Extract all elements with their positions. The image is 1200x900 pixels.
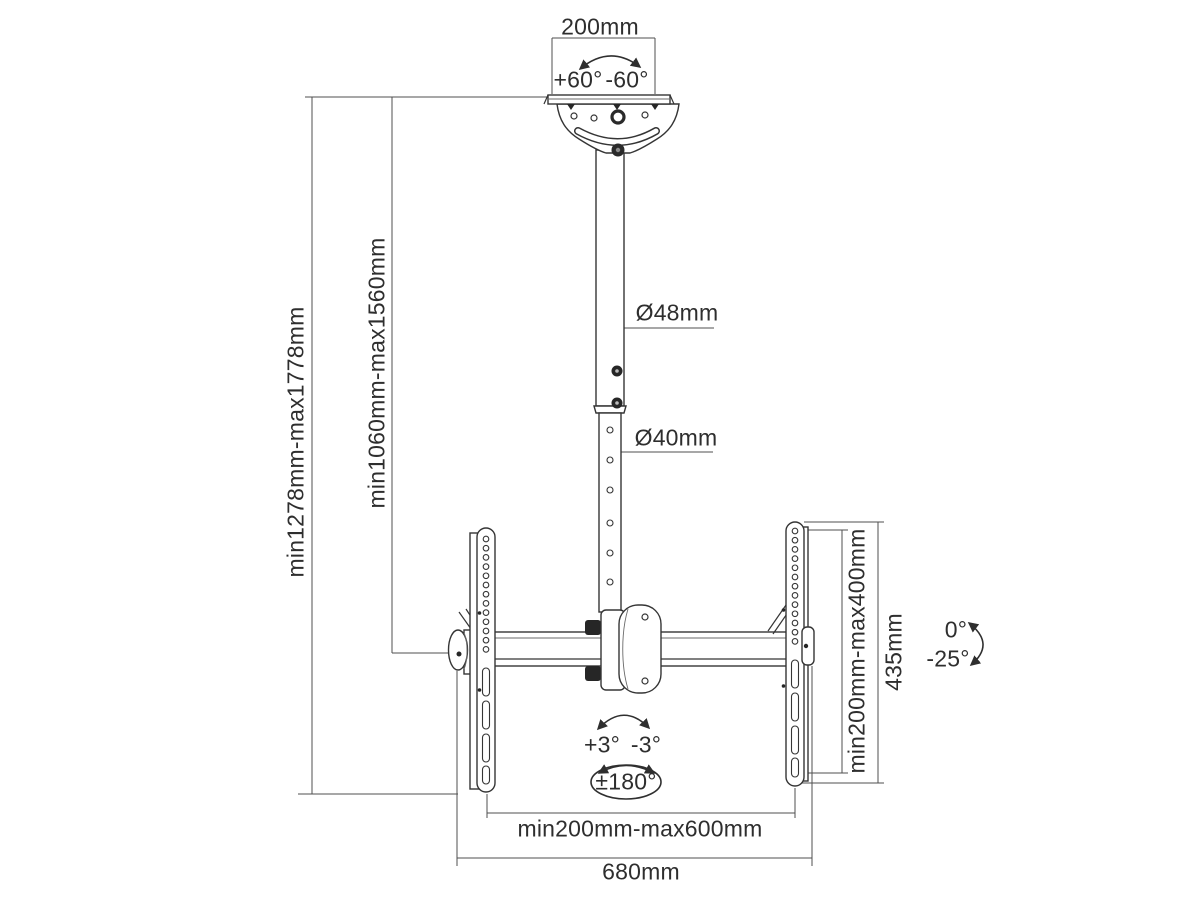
mount-drawing <box>0 0 1200 900</box>
tilt-range-arc-arrow <box>969 623 983 665</box>
dim-label-pole-height: min1060mm-max1560mm <box>366 238 389 509</box>
dim-label-ceiling-plate-width: 200mm <box>561 16 639 39</box>
dim-label-upper-pole-diameter: Ø48mm <box>636 302 719 325</box>
dim-label-overall-height: min1278mm-max1778mm <box>285 307 308 578</box>
dim-label-vesa-height: min200mm-max400mm <box>846 529 869 774</box>
ceiling-bracket <box>544 95 679 157</box>
left-vesa-rail <box>470 528 495 792</box>
dim-label-fine-tilt-plus: +3° <box>584 734 620 757</box>
dim-label-swivel-minus: -60° <box>605 69 648 92</box>
dim-label-lower-pole-diameter: Ø40mm <box>635 427 718 450</box>
dim-label-rotation-range: ±180° <box>595 771 656 794</box>
fine-tilt-arc-arrow <box>598 715 649 729</box>
mount-dimension-diagram: 200mm +60° -60° Ø48mm Ø40mm min1278mm-ma… <box>0 0 1200 900</box>
dim-label-swivel-plus: +60° <box>553 69 602 92</box>
telescopic-pole <box>594 150 626 612</box>
left-rail-slots <box>483 668 490 784</box>
dim-label-overall-width: 680mm <box>602 861 680 884</box>
ceiling-plate <box>548 95 670 104</box>
tension-knob <box>449 630 468 670</box>
dim-label-fine-tilt-minus: -3° <box>631 734 661 757</box>
dim-label-bracket-height: 435mm <box>883 613 906 691</box>
right-rail-slots <box>792 660 799 777</box>
dim-label-tilt-down: -25° <box>926 648 969 671</box>
dim-label-vesa-width: min200mm-max600mm <box>518 818 763 841</box>
dim-label-tilt-zero: 0° <box>945 619 967 642</box>
